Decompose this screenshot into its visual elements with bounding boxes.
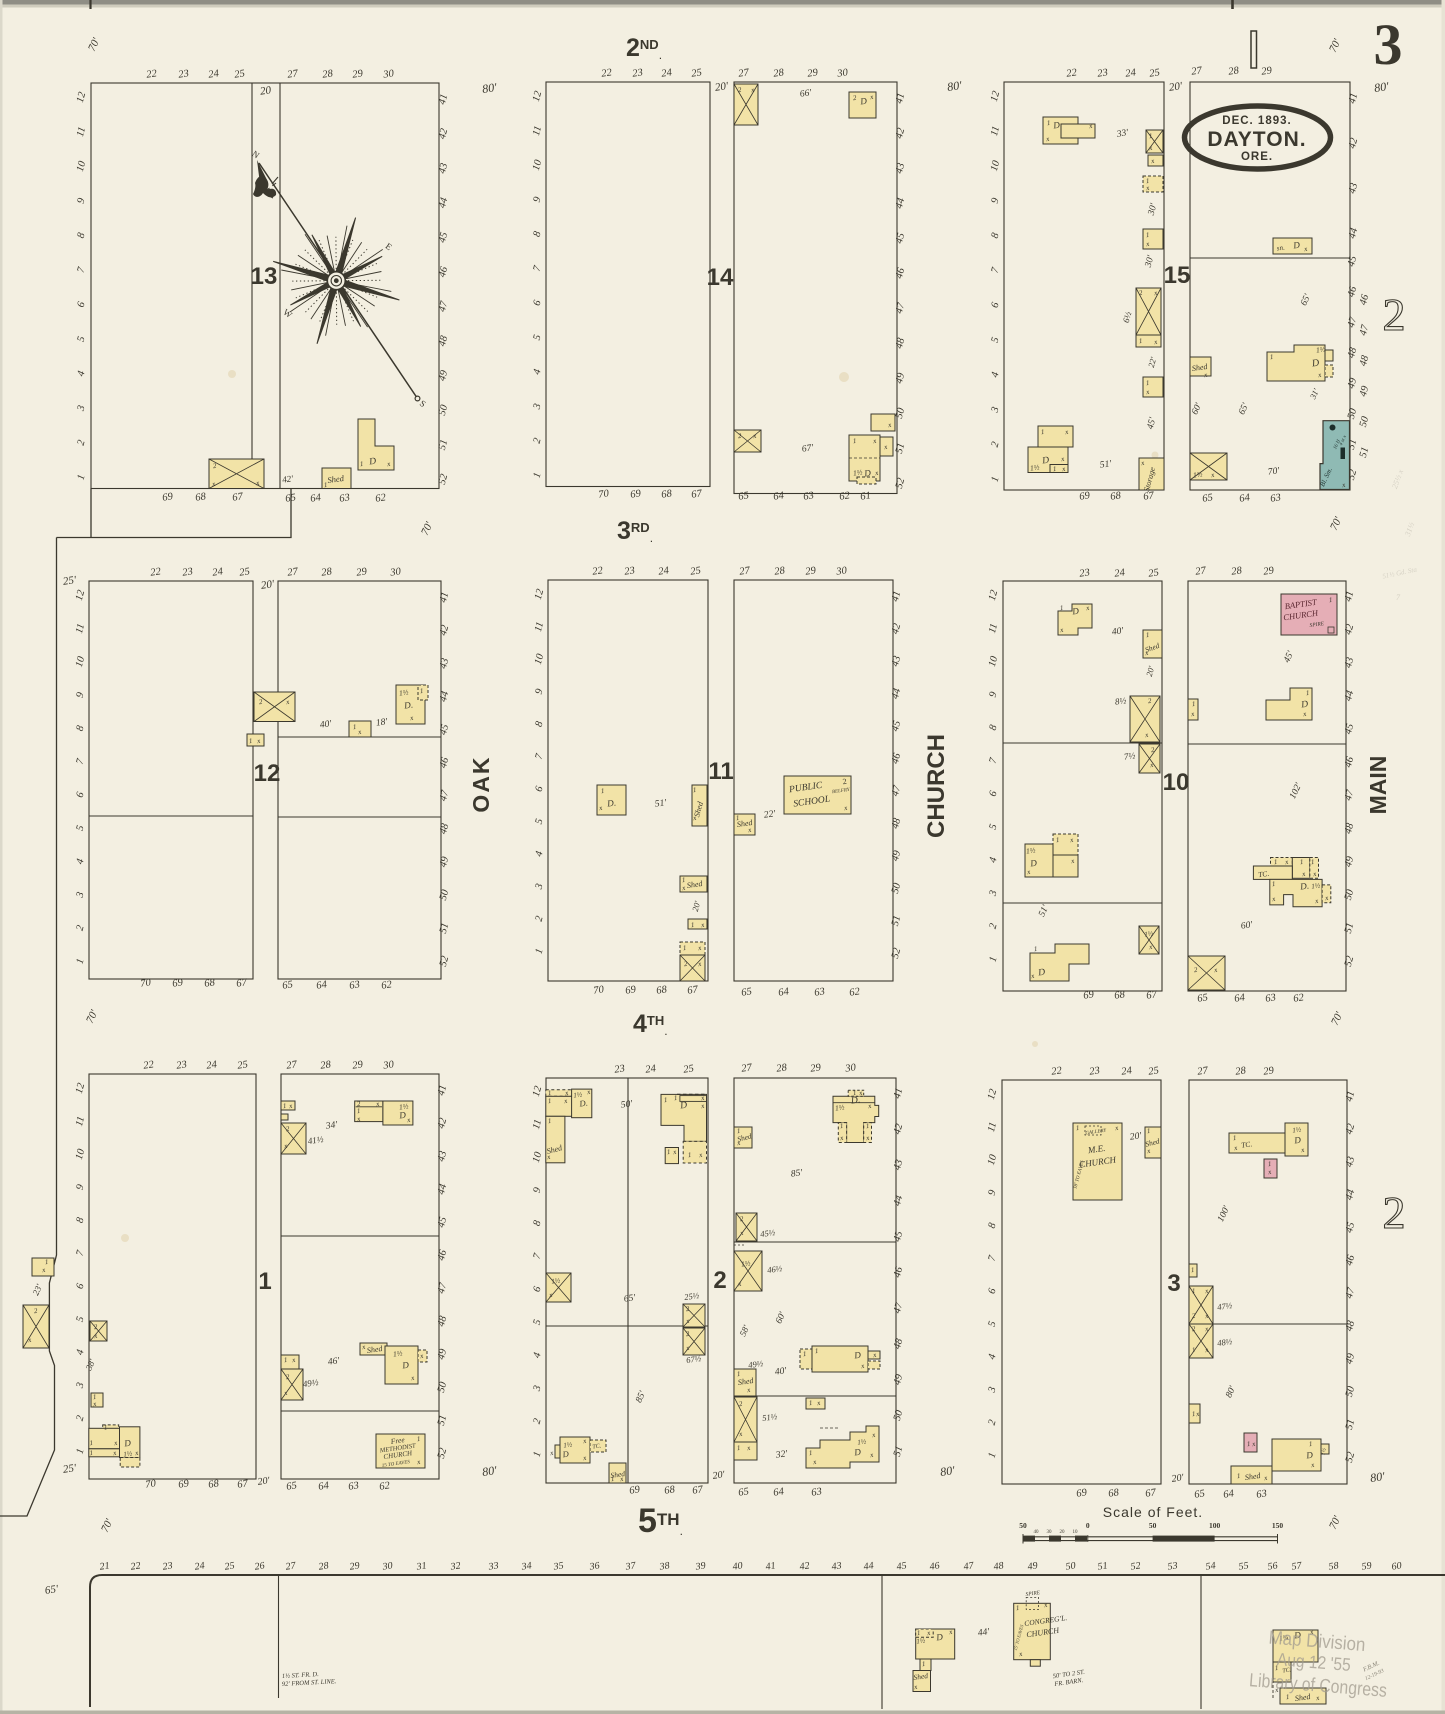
svg-text:23: 23 bbox=[632, 67, 644, 79]
svg-text:32': 32' bbox=[774, 1449, 789, 1461]
svg-text:49½: 49½ bbox=[748, 1358, 765, 1370]
svg-text:2: 2 bbox=[1383, 289, 1406, 340]
svg-text:31: 31 bbox=[415, 1560, 427, 1572]
svg-text:DEC. 1893.: DEC. 1893. bbox=[1222, 115, 1291, 127]
svg-text:65: 65 bbox=[741, 986, 753, 998]
svg-text:65: 65 bbox=[1197, 992, 1209, 1004]
svg-text:25: 25 bbox=[234, 68, 246, 80]
svg-text:46½: 46½ bbox=[767, 1263, 784, 1275]
svg-text:58: 58 bbox=[1328, 1560, 1339, 1572]
svg-text:65: 65 bbox=[1194, 1488, 1206, 1500]
svg-text:D.: D. bbox=[1299, 880, 1310, 891]
svg-text:2: 2 bbox=[713, 1267, 726, 1294]
svg-text:1½: 1½ bbox=[398, 687, 409, 697]
svg-text:30: 30 bbox=[1047, 1530, 1053, 1535]
svg-text:ORE.: ORE. bbox=[1241, 151, 1273, 163]
svg-text:20': 20' bbox=[1171, 1472, 1185, 1485]
svg-text:sn.: sn. bbox=[1276, 243, 1285, 252]
svg-text:42: 42 bbox=[799, 1560, 810, 1572]
svg-text:20': 20' bbox=[714, 80, 730, 94]
svg-text:20': 20' bbox=[1168, 80, 1184, 94]
svg-text:TC.: TC. bbox=[592, 1443, 602, 1450]
svg-text:7½: 7½ bbox=[1123, 750, 1136, 762]
svg-text:65: 65 bbox=[286, 1480, 298, 1492]
svg-text:20': 20' bbox=[257, 1475, 271, 1488]
svg-text:25': 25' bbox=[62, 574, 78, 588]
svg-text:25: 25 bbox=[691, 67, 703, 79]
svg-text:30: 30 bbox=[844, 1062, 858, 1075]
svg-text:34: 34 bbox=[520, 1560, 532, 1572]
svg-text:23: 23 bbox=[182, 566, 194, 578]
svg-text:50: 50 bbox=[1149, 1521, 1157, 1530]
svg-text:63: 63 bbox=[1270, 492, 1282, 504]
svg-text:10: 10 bbox=[1073, 1530, 1079, 1535]
svg-text:34': 34' bbox=[324, 1120, 339, 1132]
svg-text:63: 63 bbox=[339, 492, 351, 504]
svg-text:D: D bbox=[1037, 968, 1046, 979]
svg-text:54: 54 bbox=[1205, 1560, 1216, 1572]
svg-text:80': 80' bbox=[1373, 79, 1390, 95]
svg-text:80': 80' bbox=[481, 1463, 498, 1479]
svg-text:25: 25 bbox=[239, 566, 251, 578]
svg-text:Scale of Feet.: Scale of Feet. bbox=[1103, 1504, 1203, 1520]
svg-text:D: D bbox=[368, 457, 377, 468]
svg-text:DAYTON.: DAYTON. bbox=[1207, 128, 1306, 151]
svg-text:80': 80' bbox=[946, 78, 963, 94]
svg-text:3: 3 bbox=[1374, 12, 1403, 77]
svg-text:49: 49 bbox=[1027, 1560, 1038, 1572]
svg-text:25: 25 bbox=[1148, 567, 1160, 579]
svg-text:1½: 1½ bbox=[392, 1348, 403, 1358]
svg-text:36: 36 bbox=[588, 1560, 600, 1572]
svg-text:45: 45 bbox=[896, 1560, 907, 1572]
svg-text:23: 23 bbox=[178, 68, 190, 80]
svg-text:33: 33 bbox=[487, 1560, 499, 1572]
svg-text:D: D bbox=[1300, 700, 1309, 711]
svg-text:12: 12 bbox=[254, 760, 281, 787]
svg-text:1½: 1½ bbox=[1029, 462, 1040, 472]
svg-text:40: 40 bbox=[1034, 1530, 1040, 1535]
svg-text:52: 52 bbox=[1130, 1560, 1141, 1572]
svg-text:23: 23 bbox=[624, 565, 636, 577]
svg-text:30: 30 bbox=[381, 1560, 393, 1572]
svg-text:MAIN: MAIN bbox=[1365, 756, 1391, 815]
svg-text:D: D bbox=[679, 1101, 688, 1112]
svg-text:25: 25 bbox=[1148, 1065, 1160, 1077]
svg-text:29: 29 bbox=[349, 1560, 360, 1572]
svg-text:20': 20' bbox=[712, 1469, 726, 1482]
svg-text:D.: D. bbox=[578, 1098, 589, 1109]
svg-text:51: 51 bbox=[1097, 1560, 1108, 1572]
svg-text:43: 43 bbox=[831, 1560, 842, 1572]
svg-text:25: 25 bbox=[683, 1063, 695, 1075]
svg-text:20: 20 bbox=[259, 84, 272, 97]
svg-text:23: 23 bbox=[176, 1059, 188, 1071]
svg-text:80': 80' bbox=[939, 1463, 956, 1479]
svg-text:1½: 1½ bbox=[1025, 845, 1036, 855]
svg-text:40: 40 bbox=[732, 1560, 743, 1572]
svg-text:23: 23 bbox=[162, 1560, 173, 1572]
svg-text:25: 25 bbox=[690, 565, 702, 577]
svg-text:30: 30 bbox=[382, 68, 396, 81]
svg-text:1: 1 bbox=[258, 1268, 271, 1295]
svg-text:63: 63 bbox=[803, 490, 815, 502]
svg-text:D.: D. bbox=[606, 797, 617, 808]
svg-text:32: 32 bbox=[449, 1560, 461, 1572]
svg-text:65: 65 bbox=[738, 1486, 750, 1498]
svg-text:TC.: TC. bbox=[1258, 869, 1270, 879]
svg-text:20: 20 bbox=[1060, 1530, 1066, 1535]
svg-text:39: 39 bbox=[694, 1560, 706, 1572]
svg-text:65: 65 bbox=[282, 979, 294, 991]
svg-text:38: 38 bbox=[658, 1560, 670, 1572]
svg-text:41: 41 bbox=[765, 1560, 776, 1572]
svg-text:63: 63 bbox=[811, 1486, 823, 1498]
svg-text:2: 2 bbox=[1383, 1187, 1406, 1238]
svg-text:25': 25' bbox=[62, 1462, 78, 1476]
svg-text:65': 65' bbox=[44, 1583, 60, 1597]
svg-text:63: 63 bbox=[348, 1480, 360, 1492]
svg-text:23: 23 bbox=[1097, 67, 1109, 79]
svg-text:0: 0 bbox=[1086, 1521, 1090, 1530]
svg-text:80': 80' bbox=[1369, 1469, 1386, 1485]
svg-text:1½: 1½ bbox=[852, 467, 863, 477]
svg-text:OAK: OAK bbox=[468, 755, 494, 812]
svg-text:24: 24 bbox=[194, 1560, 205, 1572]
svg-text:23: 23 bbox=[1079, 567, 1091, 579]
svg-text:50: 50 bbox=[1019, 1521, 1027, 1530]
svg-text:23: 23 bbox=[1089, 1065, 1101, 1077]
svg-text:1½: 1½ bbox=[1315, 344, 1326, 354]
svg-text:14: 14 bbox=[707, 264, 734, 291]
svg-text:11: 11 bbox=[708, 758, 733, 785]
svg-text:22: 22 bbox=[130, 1560, 141, 1572]
svg-text:56: 56 bbox=[1267, 1560, 1278, 1572]
svg-text:25: 25 bbox=[1149, 67, 1161, 79]
svg-text:80': 80' bbox=[481, 80, 498, 96]
svg-text:50: 50 bbox=[1065, 1560, 1076, 1572]
svg-text:46: 46 bbox=[929, 1560, 940, 1572]
svg-text:25: 25 bbox=[237, 1059, 249, 1071]
svg-text:35: 35 bbox=[552, 1560, 564, 1572]
svg-text:20': 20' bbox=[260, 578, 276, 592]
svg-text:67½: 67½ bbox=[686, 1353, 703, 1365]
svg-text:65: 65 bbox=[1202, 492, 1214, 504]
svg-text:TC.: TC. bbox=[1241, 1139, 1253, 1149]
svg-text:D.: D. bbox=[403, 699, 414, 710]
svg-text:10: 10 bbox=[1163, 769, 1190, 796]
svg-text:15: 15 bbox=[1164, 262, 1191, 289]
svg-text:30: 30 bbox=[389, 566, 403, 579]
svg-text:28: 28 bbox=[318, 1560, 329, 1572]
svg-text:63: 63 bbox=[1265, 992, 1277, 1004]
svg-text:59: 59 bbox=[1361, 1560, 1372, 1572]
svg-text:63: 63 bbox=[1256, 1488, 1268, 1500]
svg-text:63: 63 bbox=[349, 979, 361, 991]
svg-text:1½: 1½ bbox=[1192, 469, 1203, 479]
svg-text:53: 53 bbox=[1167, 1560, 1178, 1572]
svg-text:44: 44 bbox=[863, 1560, 874, 1572]
svg-text:48: 48 bbox=[993, 1560, 1004, 1572]
svg-text:63: 63 bbox=[814, 986, 826, 998]
svg-text:D: D bbox=[1041, 456, 1050, 467]
svg-text:25: 25 bbox=[224, 1560, 235, 1572]
svg-text:51½: 51½ bbox=[762, 1411, 779, 1423]
svg-text:23: 23 bbox=[614, 1063, 626, 1075]
svg-text:25½: 25½ bbox=[684, 1290, 701, 1302]
svg-text:60: 60 bbox=[1391, 1560, 1402, 1572]
svg-text:21: 21 bbox=[99, 1560, 110, 1572]
svg-text:55: 55 bbox=[1238, 1560, 1249, 1572]
svg-text:30: 30 bbox=[836, 67, 850, 80]
svg-text:65: 65 bbox=[738, 490, 750, 502]
svg-text:30: 30 bbox=[382, 1059, 396, 1072]
svg-text:13: 13 bbox=[251, 263, 278, 290]
svg-text:150: 150 bbox=[1272, 1521, 1284, 1530]
svg-text:1½: 1½ bbox=[740, 1258, 751, 1268]
svg-text:1½: 1½ bbox=[834, 1102, 845, 1112]
svg-text:48½: 48½ bbox=[1217, 1336, 1234, 1348]
svg-text:26: 26 bbox=[254, 1560, 265, 1572]
svg-text:3: 3 bbox=[1167, 1270, 1180, 1297]
svg-text:30: 30 bbox=[835, 565, 849, 578]
svg-text:CHURCH: CHURCH bbox=[923, 734, 950, 838]
svg-text:61: 61 bbox=[860, 490, 872, 502]
svg-text:47½: 47½ bbox=[1217, 1300, 1234, 1312]
svg-text:8½: 8½ bbox=[1114, 695, 1127, 707]
svg-text:45½: 45½ bbox=[760, 1227, 777, 1239]
svg-text:100: 100 bbox=[1209, 1521, 1221, 1530]
